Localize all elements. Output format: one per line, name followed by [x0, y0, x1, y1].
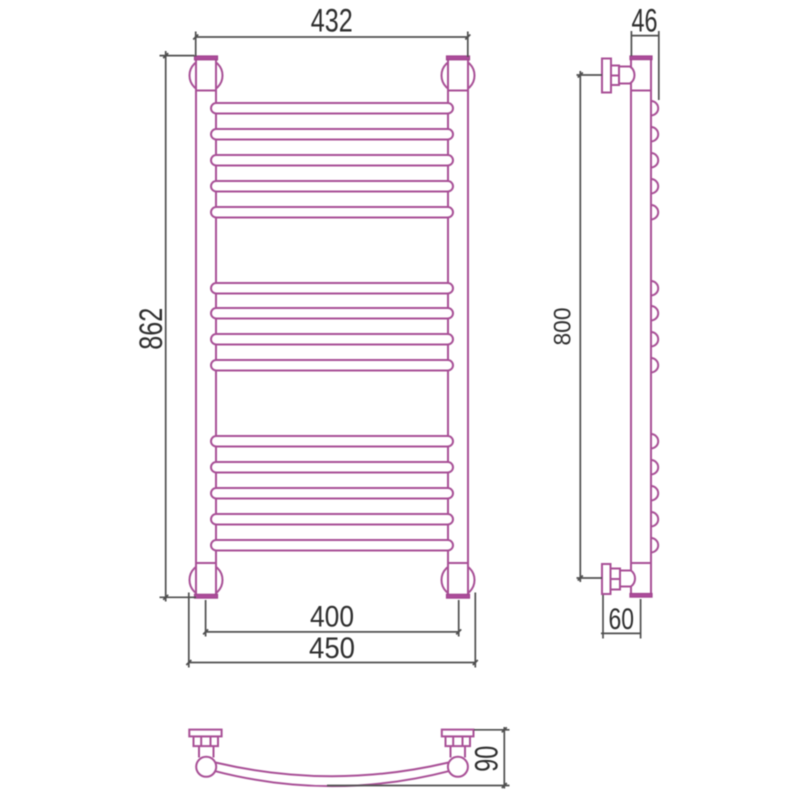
svg-text:800: 800: [550, 308, 577, 346]
svg-text:862: 862: [133, 308, 169, 350]
svg-text:432: 432: [311, 3, 353, 39]
svg-text:60: 60: [609, 603, 635, 636]
svg-text:450: 450: [309, 632, 355, 665]
svg-text:46: 46: [632, 2, 658, 38]
svg-text:400: 400: [310, 601, 354, 634]
svg-text:90: 90: [469, 746, 505, 772]
